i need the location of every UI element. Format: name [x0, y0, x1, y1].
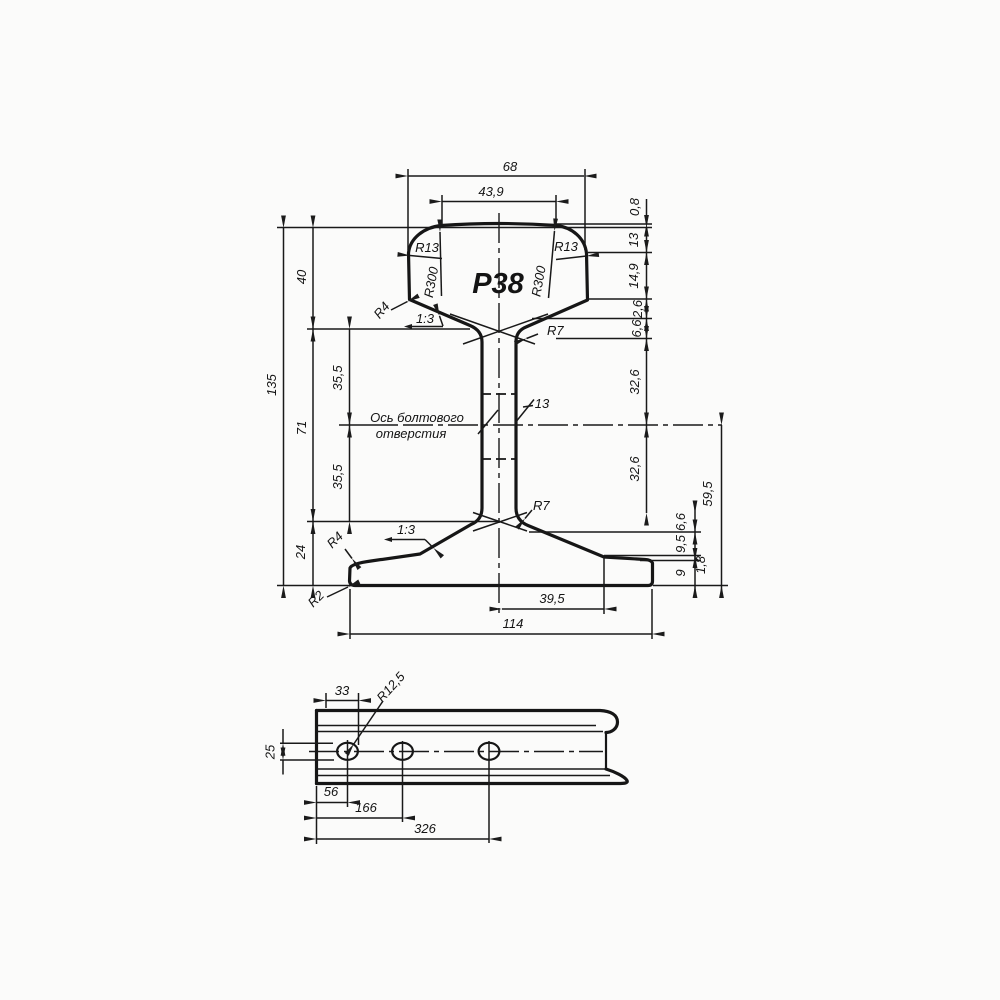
svg-text:59,5: 59,5	[700, 481, 715, 507]
svg-text:114: 114	[503, 616, 524, 631]
svg-text:39,5: 39,5	[539, 591, 565, 606]
svg-text:35,5: 35,5	[330, 464, 345, 490]
svg-text:9,5: 9,5	[673, 534, 688, 553]
svg-text:R2: R2	[305, 587, 328, 610]
svg-text:R7: R7	[533, 498, 550, 513]
svg-text:2,6: 2,6	[630, 299, 645, 319]
svg-text:14,9: 14,9	[626, 263, 641, 288]
svg-text:25: 25	[263, 744, 278, 760]
svg-text:R300: R300	[421, 265, 441, 299]
svg-text:326: 326	[414, 821, 436, 836]
svg-text:32,6: 32,6	[627, 369, 642, 395]
svg-text:R7: R7	[547, 323, 564, 338]
svg-text:33: 33	[335, 683, 350, 698]
svg-text:0,8: 0,8	[627, 197, 642, 216]
svg-text:R4: R4	[324, 529, 346, 551]
svg-text:13: 13	[535, 396, 550, 411]
svg-text:166: 166	[355, 800, 377, 815]
svg-text:13: 13	[626, 232, 641, 247]
svg-text:6,6: 6,6	[629, 319, 644, 338]
svg-text:71: 71	[294, 421, 309, 435]
svg-text:R300: R300	[528, 264, 548, 298]
svg-text:1:3: 1:3	[416, 311, 435, 326]
svg-text:R4: R4	[370, 299, 392, 321]
svg-text:Р38: Р38	[472, 268, 524, 300]
svg-text:6,6: 6,6	[673, 512, 688, 531]
svg-text:135: 135	[264, 373, 279, 395]
svg-text:43,9: 43,9	[478, 184, 503, 199]
svg-text:56: 56	[324, 784, 339, 799]
svg-text:отверстия: отверстия	[376, 426, 447, 441]
svg-text:1:3: 1:3	[397, 522, 416, 537]
svg-text:68: 68	[503, 159, 518, 174]
svg-text:40: 40	[294, 269, 309, 284]
svg-text:R13: R13	[415, 240, 440, 255]
svg-text:24: 24	[293, 545, 308, 560]
svg-text:R12,5: R12,5	[373, 669, 408, 705]
svg-text:Ось болтового: Ось болтового	[370, 410, 464, 425]
svg-text:R13: R13	[554, 239, 579, 254]
svg-text:32,6: 32,6	[627, 456, 642, 482]
svg-text:35,5: 35,5	[330, 365, 345, 391]
svg-text:9: 9	[673, 569, 688, 576]
